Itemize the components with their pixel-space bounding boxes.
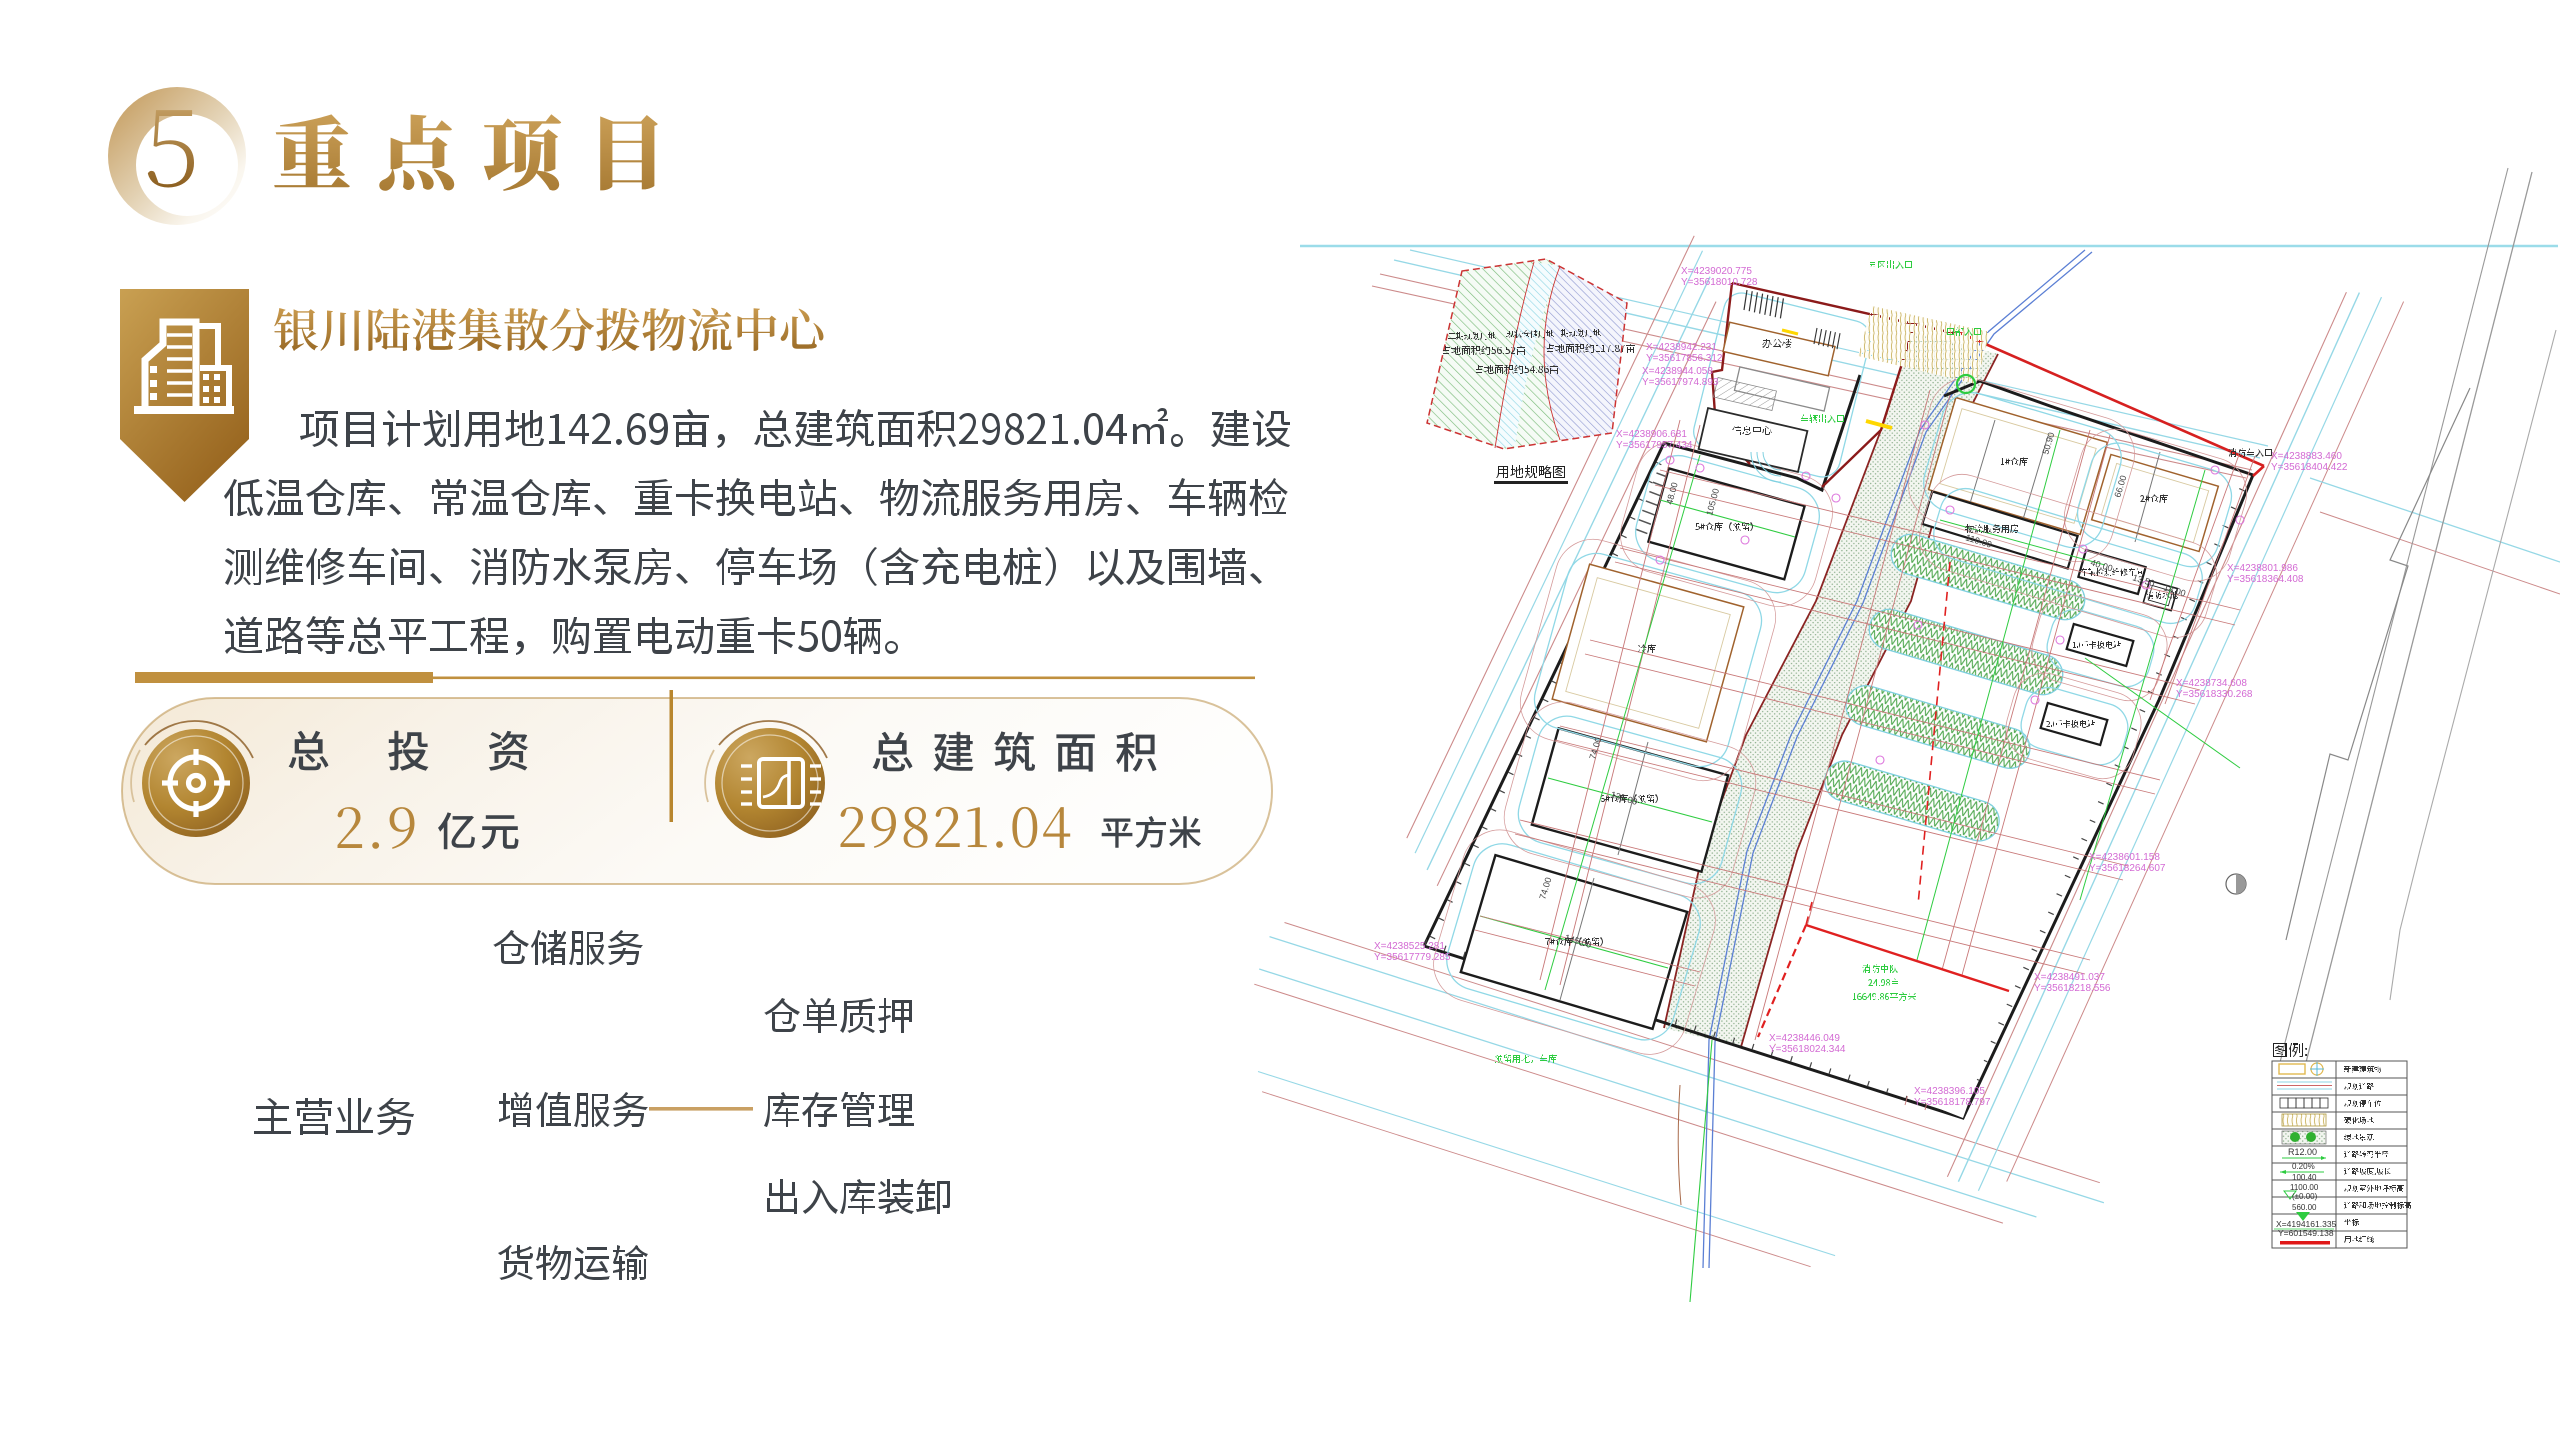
svg-text:Y=35617957.434: Y=35617957.434 <box>1616 440 1693 451</box>
svg-text:0.20%: 0.20% <box>2292 1162 2315 1171</box>
svg-text:100.40: 100.40 <box>2292 1173 2317 1182</box>
svg-text:X=4238446.049: X=4238446.049 <box>1769 1033 1840 1044</box>
svg-text:Y=35617779.285: Y=35617779.285 <box>1374 952 1451 963</box>
svg-text:X=4238883.460: X=4238883.460 <box>2271 451 2342 462</box>
svg-text:Y=601549.138: Y=601549.138 <box>2278 1228 2334 1238</box>
svg-text:X=4238491.037: X=4238491.037 <box>2034 972 2105 983</box>
svg-text:X=4238734.608: X=4238734.608 <box>2176 678 2247 689</box>
svg-text:X=4238601.158: X=4238601.158 <box>2089 852 2160 863</box>
svg-text:Y=35617856.312: Y=35617856.312 <box>1646 353 1723 364</box>
svg-text:Y=35618218.556: Y=35618218.556 <box>2034 983 2111 994</box>
svg-text:X=4238396.105: X=4238396.105 <box>1914 1086 1985 1097</box>
svg-text:Y=35618178.797: Y=35618178.797 <box>1914 1097 1991 1108</box>
svg-text:Y=35618010.728: Y=35618010.728 <box>1681 277 1758 288</box>
svg-text:Y=35618024.344: Y=35618024.344 <box>1769 1044 1846 1055</box>
svg-text:Y=35618404.422: Y=35618404.422 <box>2271 462 2348 473</box>
svg-text:Y=35618330.268: Y=35618330.268 <box>2176 689 2253 700</box>
svg-text:X=4238906.681: X=4238906.681 <box>1616 429 1687 440</box>
svg-text:X=4239020.775: X=4239020.775 <box>1681 266 1752 277</box>
svg-text:Y=35618364.408: Y=35618364.408 <box>2227 574 2304 585</box>
svg-text:(±0.00): (±0.00) <box>2292 1192 2318 1201</box>
svg-text:R12.00: R12.00 <box>2288 1147 2317 1157</box>
svg-text:X=4238942.231: X=4238942.231 <box>1646 342 1717 353</box>
svg-text:X=4238944.058: X=4238944.058 <box>1642 366 1713 377</box>
svg-text:560.00: 560.00 <box>2292 1203 2317 1212</box>
svg-text:Y=35618264.607: Y=35618264.607 <box>2089 863 2166 874</box>
svg-text:Y=35617974.893: Y=35617974.893 <box>1642 377 1719 388</box>
svg-text:X=4238801.986: X=4238801.986 <box>2227 563 2298 574</box>
svg-text:X=4238525.281: X=4238525.281 <box>1374 941 1445 952</box>
